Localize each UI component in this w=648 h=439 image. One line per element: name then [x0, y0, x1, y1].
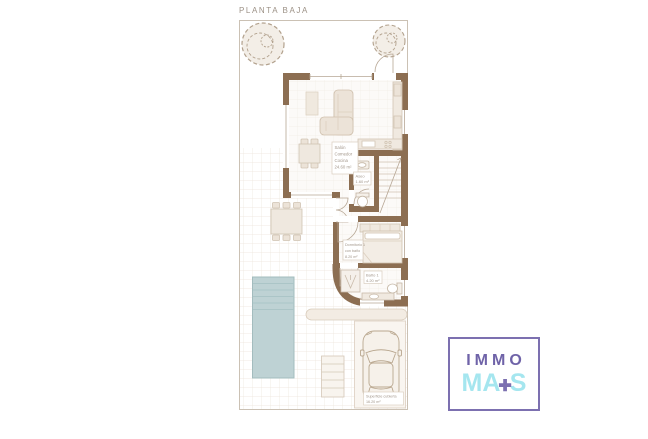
svg-text:Superficie cubierta: Superficie cubierta: [366, 395, 397, 399]
svg-text:4.20 m²: 4.20 m²: [366, 278, 380, 283]
dining-table-outdoor: [271, 203, 302, 241]
rug: [306, 92, 318, 115]
page: PLANTA BAJA: [0, 0, 648, 439]
bath-vanity: [362, 293, 394, 300]
pool: [253, 277, 295, 378]
immomas-logo: IMMO MA ✚ S: [448, 337, 540, 411]
outdoor-steps: [322, 356, 345, 397]
svg-text:Aseo: Aseo: [356, 174, 366, 179]
room-label-parking: Superficie cubierta 16.20 m²: [364, 392, 404, 405]
svg-text:con baño: con baño: [345, 249, 360, 253]
svg-text:24.60 m²: 24.60 m²: [335, 165, 353, 170]
room-label-bedroom: Dormitorio 1 con baño 8.20 m²: [343, 240, 365, 260]
logo-text-immo: IMMO: [466, 352, 526, 370]
porch-band: [306, 309, 407, 320]
svg-text:Salón: Salón: [335, 145, 347, 150]
svg-text:8.20 m²: 8.20 m²: [345, 255, 358, 259]
svg-text:Cocina: Cocina: [335, 158, 349, 163]
toilet: [388, 283, 403, 294]
logo-mas-ma: MA: [462, 371, 501, 396]
svg-text:Baño 1: Baño 1: [366, 273, 379, 278]
tree-icon: [373, 25, 405, 57]
bed: [363, 231, 402, 263]
room-label-aseo: Aseo 1.60 m²: [354, 172, 372, 185]
svg-text:Dormitorio 1: Dormitorio 1: [345, 243, 365, 247]
logo-text-mas: MA ✚ S: [462, 371, 527, 396]
floor-plan: Salón Comedor Cocina 24.60 m² Aseo 1.60 …: [0, 0, 648, 439]
logo-plus-icon: ✚: [498, 379, 511, 395]
shower: [341, 270, 360, 292]
logo-mas-s: S: [510, 371, 527, 396]
svg-text:Comedor: Comedor: [335, 152, 353, 157]
room-label-bathroom: Baño 1 4.20 m²: [364, 271, 382, 284]
car-icon: [361, 331, 402, 401]
svg-text:1.60 m²: 1.60 m²: [356, 179, 370, 184]
tree-icon: [242, 23, 284, 65]
svg-text:16.20 m²: 16.20 m²: [366, 400, 381, 404]
room-label-living: Salón Comedor Cocina 24.60 m²: [332, 142, 358, 174]
